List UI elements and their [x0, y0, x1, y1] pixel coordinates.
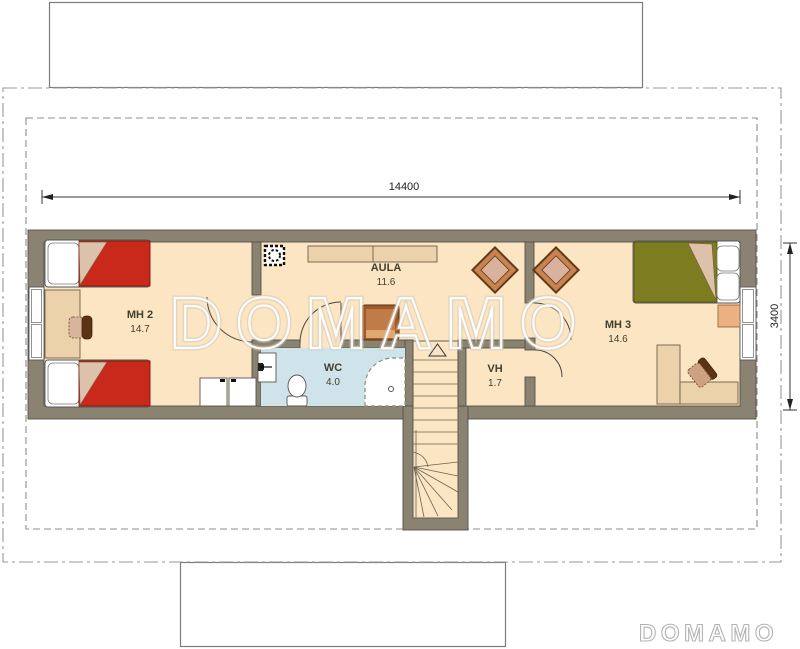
bed-icon: [45, 360, 150, 407]
window-right: [740, 287, 756, 360]
room-area: 14.6: [608, 334, 628, 345]
dimension-width-label: 14400: [389, 181, 420, 193]
brand-logo: DOMAMO: [639, 620, 778, 647]
dimension-height-label: 3400: [769, 304, 781, 328]
room-name: MH 2: [127, 309, 153, 321]
double-bed-icon: [633, 241, 740, 303]
room-name: AULA: [371, 262, 402, 274]
sideboard-icon: [308, 246, 437, 262]
room-name: VH: [487, 363, 502, 375]
floor-plan-canvas: 14400 3400: [0, 0, 800, 649]
room-area: 4.0: [326, 377, 340, 388]
roof-outline-top: [50, 3, 643, 88]
dimension-vertical: 3400: [769, 243, 797, 410]
nightstand-icon: [718, 305, 740, 327]
watermark: DOMAMO DOMAMO: [170, 284, 590, 364]
window-left: [29, 287, 44, 360]
bed-icon: [45, 240, 150, 287]
chimney-icon: [265, 246, 284, 265]
desk-chair-icon: [69, 316, 92, 339]
toilet-icon: [287, 375, 307, 406]
room-area: 14.7: [130, 324, 150, 335]
dimension-horizontal: 14400: [42, 181, 740, 204]
roof-outline-bottom: [181, 563, 506, 647]
room-area: 1.7: [488, 378, 502, 389]
room-name: MH 3: [605, 319, 631, 331]
floor-plan-drawing: 14400 3400: [0, 0, 800, 649]
watermark-text: DOMAMO: [170, 284, 590, 364]
